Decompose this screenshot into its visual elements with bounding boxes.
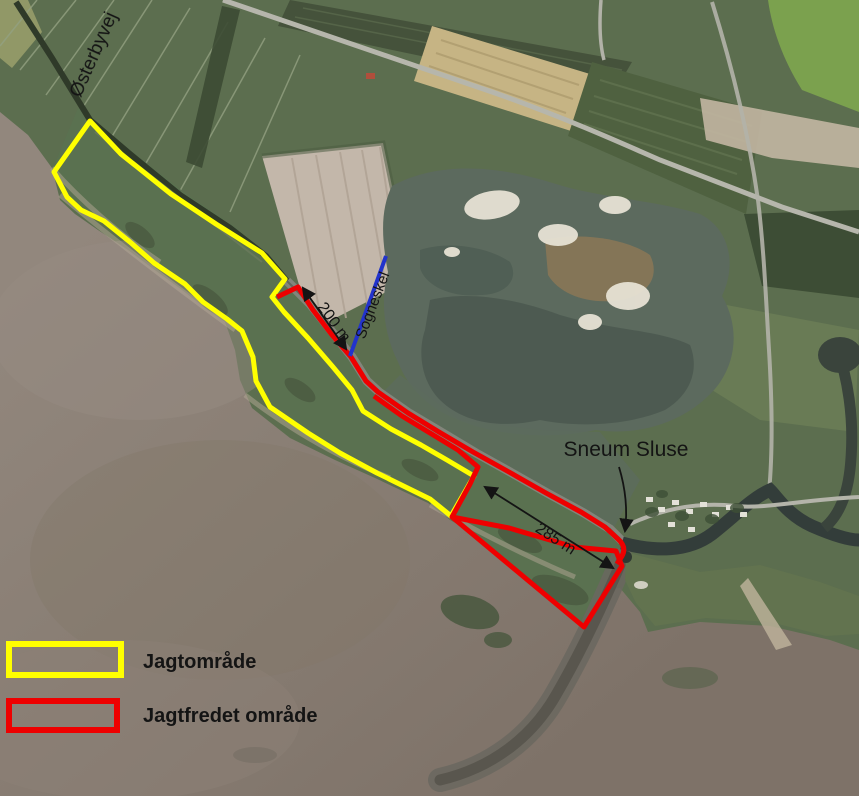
- legend-label-jagtomraade: Jagtområde: [143, 650, 256, 673]
- satellite-map: Østerbyvej Sogneskel 200 m 285 m Sneum S…: [0, 0, 859, 796]
- map-figure: Østerbyvej Sogneskel 200 m 285 m Sneum S…: [0, 0, 859, 796]
- legend-label-jagtfredet: Jagtfredet område: [143, 704, 318, 727]
- label-sneum-sluse: Sneum Sluse: [564, 438, 689, 461]
- farm-building: [366, 73, 375, 79]
